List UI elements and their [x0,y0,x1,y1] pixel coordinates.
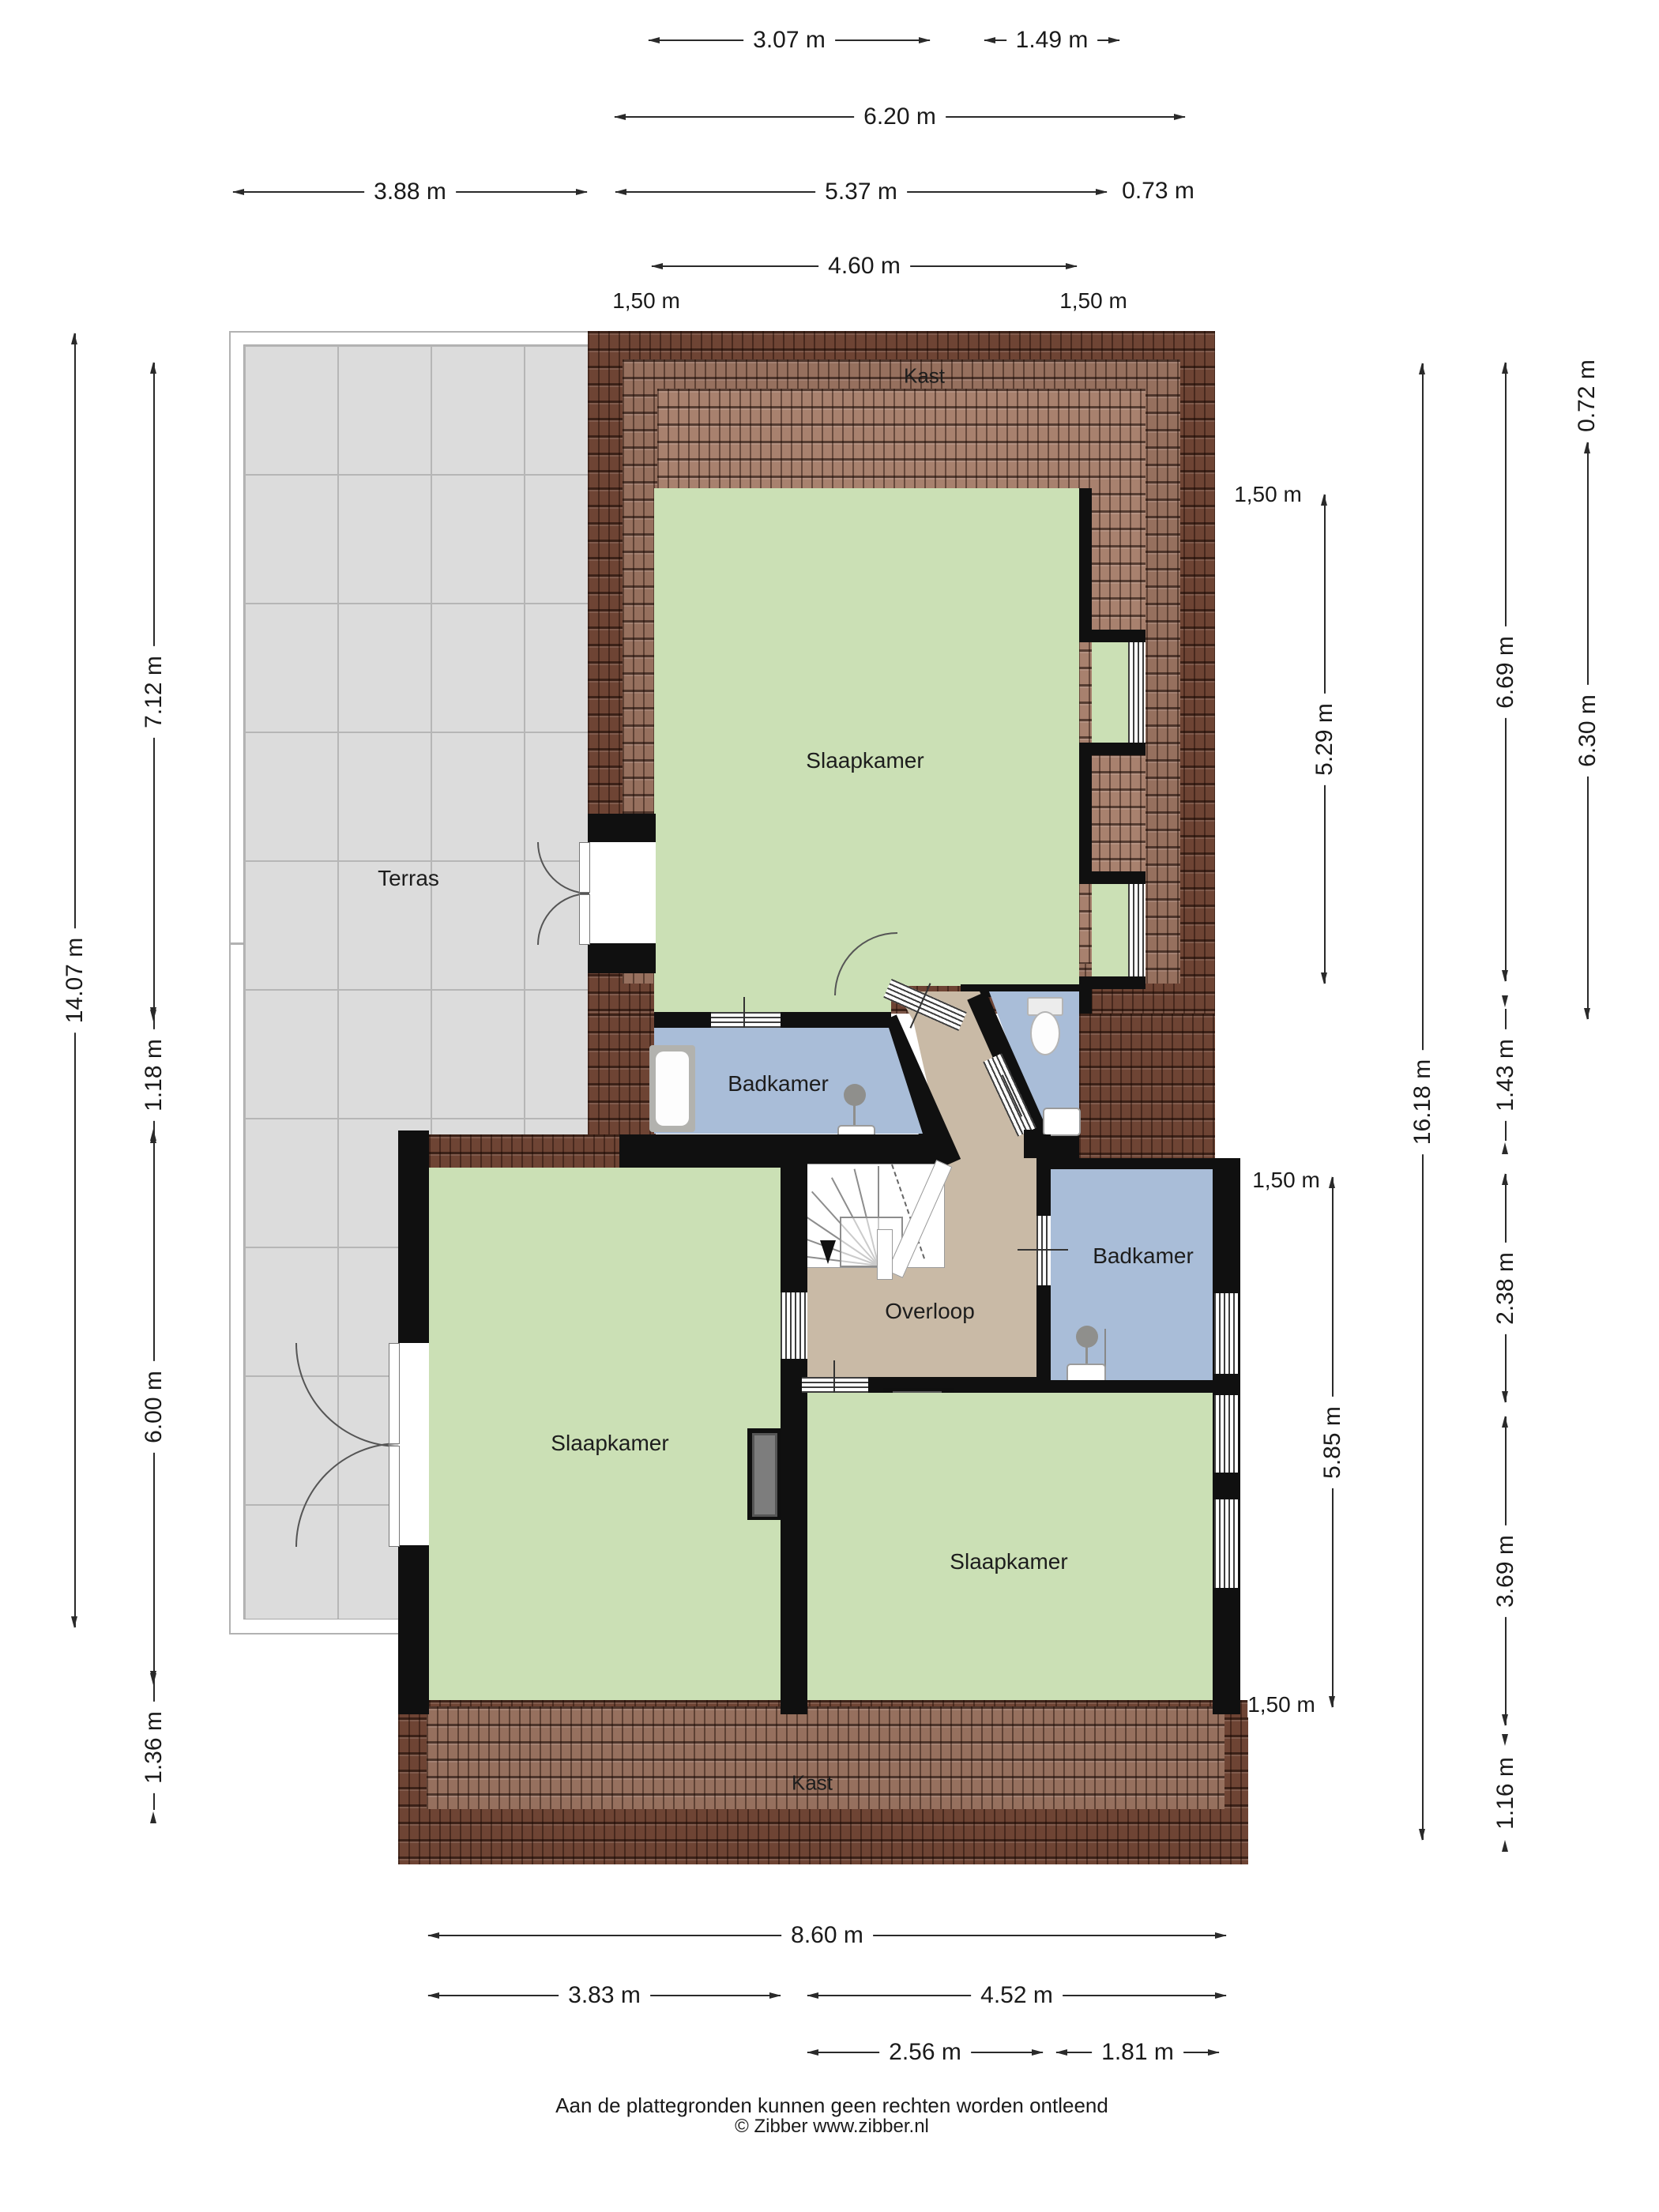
dim-label: 6.20 m [854,103,946,130]
dim-1.16m: 1.16 m [1505,1747,1507,1838]
dim-1.50m-top-left: 1,50 m [612,288,680,314]
bay-floor [1092,642,1128,743]
dim-6.69m: 6.69 m [1505,363,1507,981]
wall-stub [1213,1700,1240,1714]
dim-5.85m: 5.85 m [1332,1177,1334,1707]
dim-label: 1.18 m [141,1029,167,1121]
door-opening [781,1292,807,1359]
dim-3.07m: 3.07 m [649,39,930,41]
wall-center [781,1134,807,1292]
wall [1079,488,1092,630]
room-slaapkamer-top [654,488,1079,986]
window [1214,1499,1238,1588]
dim-4.60m: 4.60 m [652,265,1077,267]
window [1214,1395,1238,1473]
wall-bay-stub [1079,976,1145,989]
wall-bay-stub [1079,630,1145,642]
room-label-terras: Terras [378,866,439,891]
room-label-badkamer-right: Badkamer [1093,1243,1194,1269]
wall [662,1134,786,1168]
dim-5.37m: 5.37 m [615,191,1107,193]
footer-disclaimer: Aan de plattegronden kunnen geen rechten… [555,2093,1108,2118]
door-opening [588,842,656,943]
dim-1.50m-right-mid: 1,50 m [1252,1168,1320,1193]
bathtub-icon [656,1051,689,1126]
toilet-icon [1030,1011,1060,1055]
dim-6.30m: 6.30 m [1587,442,1589,1019]
wall-door-stub [588,943,656,973]
bay-floor [1092,884,1128,976]
window [1128,642,1145,743]
door-tick [1018,1249,1068,1251]
window [711,1012,781,1028]
wall [1036,1285,1051,1382]
dim-16.18m: 16.18 m [1422,363,1424,1840]
room-label-kast-bottom: Kast [792,1771,833,1796]
dim-5.29m: 5.29 m [1324,495,1326,984]
shower-icon [1076,1326,1098,1348]
wall-bay-stub [1079,743,1145,755]
terrace-railing-joint [230,942,243,945]
room-badkamer-right [1051,1168,1219,1382]
dim-label: 3.83 m [559,1982,650,2009]
dim-0.73m: 0.73 m [1122,178,1194,205]
wall-outer-left [398,1130,429,1343]
dim-8.60m: 8.60 m [428,1935,1226,1936]
dim-6.00m: 6.00 m [153,1130,155,1684]
window [802,1377,868,1393]
dim-1.50m-right-top: 1,50 m [1234,482,1302,507]
dim-1.36m: 1.36 m [153,1684,155,1810]
stairs-newel [877,1229,893,1280]
dim-label: 5.29 m [1311,694,1338,785]
door-leaf [579,894,590,945]
dim-1.81m: 1.81 m [1056,2052,1219,2053]
down-arrow-icon [820,1240,836,1264]
dim-1.50m-right-bottom: 1,50 m [1247,1692,1315,1717]
dim-label: 3.69 m [1492,1525,1519,1617]
dim-4.52m: 4.52 m [807,1995,1226,1996]
wall-stub [781,1700,807,1714]
dim-14.07m: 14.07 m [74,333,76,1627]
dim-2.56m: 2.56 m [807,2052,1043,2053]
dim-3.69m: 3.69 m [1505,1416,1507,1725]
dim-label: 8.60 m [781,1922,873,1949]
dim-label: 16.18 m [1409,1049,1436,1153]
door-leaf [389,1343,400,1444]
dim-7.12m: 7.12 m [153,363,155,1021]
window [1128,884,1145,976]
wall-outer-left [398,1545,429,1702]
duct [752,1433,777,1517]
dim-label: 1.49 m [1006,27,1098,54]
room-label-badkamer-left: Badkamer [728,1071,829,1097]
dim-label: 7.12 m [141,646,167,738]
dim-label: 3.88 m [364,179,456,205]
room-label-overloop: Overloop [885,1299,975,1324]
dim-label: 6.30 m [1574,685,1601,777]
dim-1.18m: 1.18 m [153,1021,155,1130]
room-label-slaapkamer-bottom-right: Slaapkamer [950,1549,1067,1574]
room-label-slaapkamer-top: Slaapkamer [806,748,924,773]
wall [1036,1380,1232,1393]
dim-label: 14.07 m [62,928,88,1033]
dim-1.43m: 1.43 m [1505,1009,1507,1141]
dim-label: 2.38 m [1492,1243,1519,1334]
room-label-kast-top: Kast [904,364,945,389]
window [1214,1293,1238,1374]
wall [1036,1134,1051,1216]
room-label-slaapkamer-bottom-left: Slaapkamer [551,1431,668,1456]
dim-label: 1.16 m [1492,1747,1519,1839]
dim-label: 6.00 m [141,1361,167,1453]
wall-bay-stub [1079,871,1145,884]
dim-2.38m: 2.38 m [1505,1174,1507,1402]
sink-icon [1043,1108,1081,1136]
dim-0.72m: 0.72 m [1574,359,1601,432]
dim-label: 4.60 m [818,253,910,280]
dim-1.50m-top-right: 1,50 m [1059,288,1127,314]
footer-copyright: © Zibber www.zibber.nl [735,2116,929,2138]
wall [1036,1158,1232,1169]
wall-center [781,1359,807,1700]
dim-3.83m: 3.83 m [428,1995,781,1996]
wall [1079,755,1092,871]
floorplan-page: Kast Slaapkamer Terras Badkamer Overloop… [0,0,1659,2212]
dim-label: 1.43 m [1492,1029,1519,1121]
dim-label: 6.69 m [1492,626,1519,718]
dim-label: 3.07 m [743,27,835,54]
door-leaf [579,842,590,893]
room-slaapkamer-bottom-right [807,1393,1213,1700]
dim-label: 5.37 m [815,179,907,205]
shower-icon [844,1084,866,1106]
door-opening [1036,1216,1051,1285]
dim-3.88m: 3.88 m [233,191,587,193]
wall [1079,989,1092,1014]
roof-strip-right [1079,1014,1215,1168]
dim-1.49m: 1.49 m [984,39,1119,41]
door-leaf [389,1446,400,1547]
dim-label: 2.56 m [879,2039,971,2066]
dim-label: 5.85 m [1319,1397,1346,1488]
dim-label: 4.52 m [971,1982,1063,2009]
wall-stub [398,1700,429,1714]
dim-label: 1.36 m [141,1702,167,1793]
dim-6.20m: 6.20 m [615,116,1185,118]
door-opening [398,1343,429,1545]
dim-label: 1.81 m [1092,2039,1183,2066]
wall-door-stub [588,814,656,842]
